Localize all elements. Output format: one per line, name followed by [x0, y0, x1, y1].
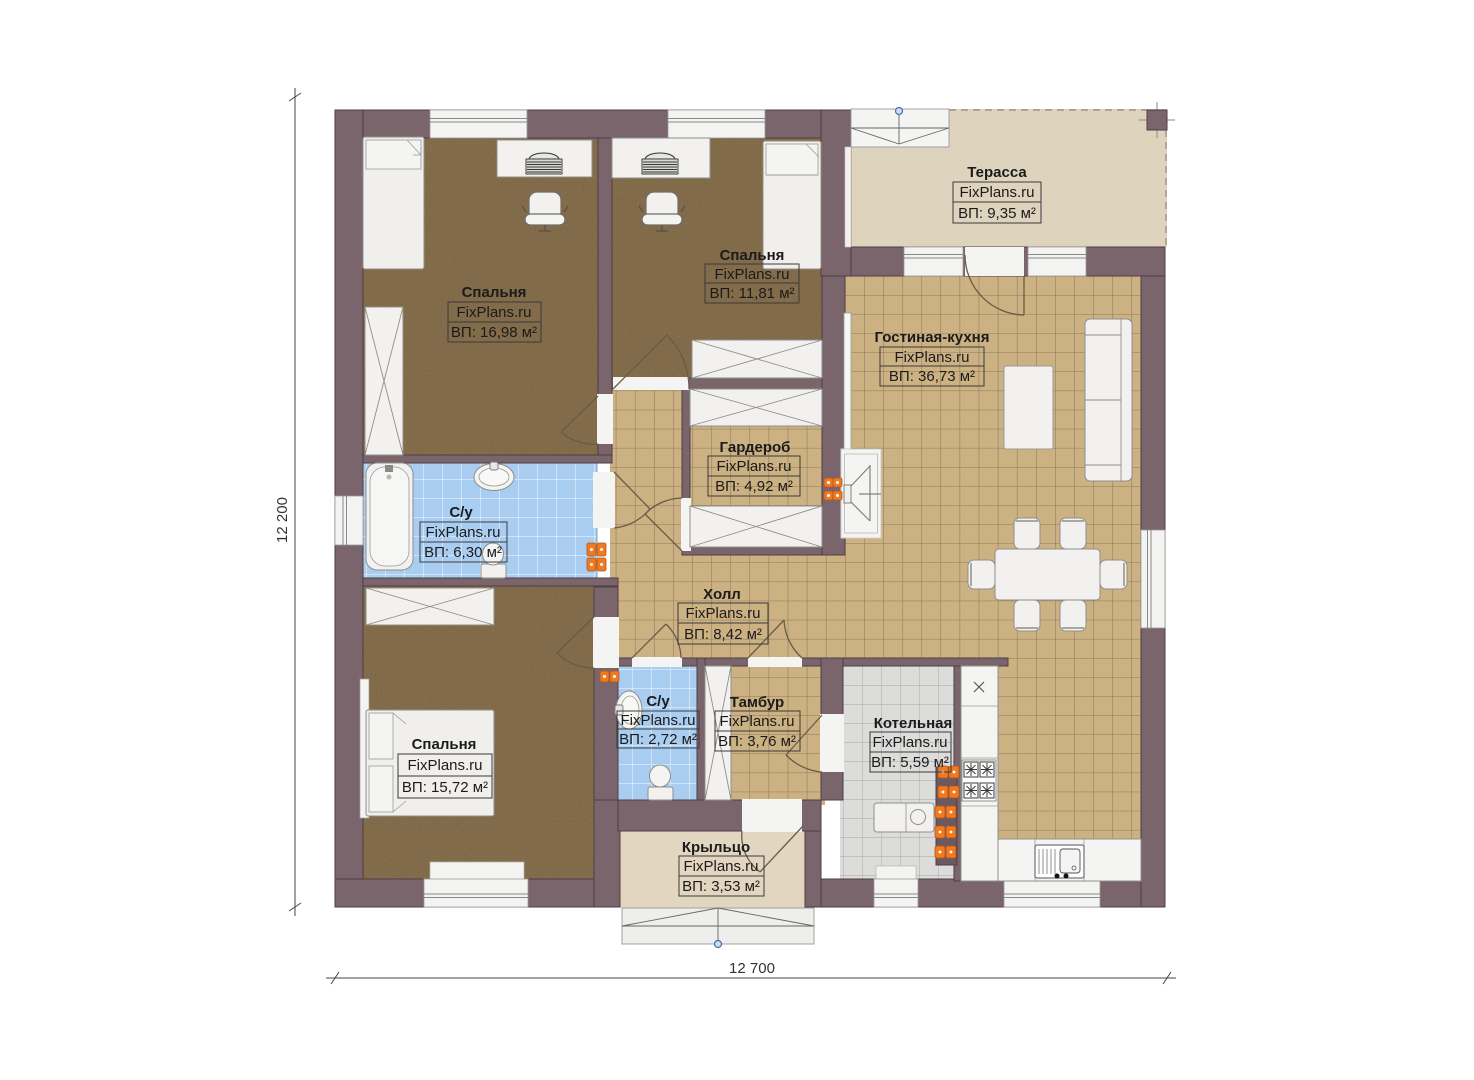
svg-text:12 700: 12 700 — [729, 960, 775, 977]
svg-text:ВП: 6,30 м²: ВП: 6,30 м² — [424, 544, 502, 561]
svg-text:ВП: 2,72 м²: ВП: 2,72 м² — [619, 731, 697, 748]
svg-text:Холл: Холл — [703, 586, 741, 603]
svg-text:FixPlans.ru: FixPlans.ru — [683, 858, 758, 875]
svg-text:ВП: 8,42 м²: ВП: 8,42 м² — [684, 626, 762, 643]
svg-text:Спальня: Спальня — [462, 284, 527, 301]
svg-text:ВП: 15,72 м²: ВП: 15,72 м² — [402, 779, 488, 796]
svg-text:ВП: 11,81 м²: ВП: 11,81 м² — [709, 285, 794, 302]
svg-text:FixPlans.ru: FixPlans.ru — [959, 184, 1034, 201]
svg-text:FixPlans.ru: FixPlans.ru — [620, 712, 695, 729]
svg-text:Гардероб: Гардероб — [720, 439, 791, 456]
svg-text:Спальня: Спальня — [720, 247, 785, 264]
svg-text:ВП: 3,76 м²: ВП: 3,76 м² — [718, 733, 796, 750]
svg-text:Крыльцо: Крыльцо — [682, 839, 750, 856]
svg-text:Котельная: Котельная — [874, 715, 953, 732]
svg-text:ВП: 5,59 м²: ВП: 5,59 м² — [871, 754, 949, 771]
svg-text:Терасса: Терасса — [967, 164, 1027, 181]
svg-text:ВП: 9,35 м²: ВП: 9,35 м² — [958, 205, 1036, 222]
svg-text:С/у: С/у — [449, 504, 473, 521]
svg-text:12 200: 12 200 — [274, 497, 291, 543]
svg-text:ВП: 16,98 м²: ВП: 16,98 м² — [451, 324, 537, 341]
svg-text:С/у: С/у — [646, 693, 670, 710]
svg-text:Тамбур: Тамбур — [730, 694, 784, 711]
svg-text:Гостиная-кухня: Гостиная-кухня — [875, 329, 990, 346]
svg-text:FixPlans.ru: FixPlans.ru — [716, 458, 791, 475]
svg-text:FixPlans.ru: FixPlans.ru — [719, 713, 794, 730]
svg-text:FixPlans.ru: FixPlans.ru — [456, 304, 531, 321]
svg-text:ВП: 3,53 м²: ВП: 3,53 м² — [682, 878, 760, 895]
svg-text:FixPlans.ru: FixPlans.ru — [407, 757, 482, 774]
svg-text:Спальня: Спальня — [412, 736, 477, 753]
svg-text:ВП: 4,92 м²: ВП: 4,92 м² — [715, 478, 793, 495]
svg-text:FixPlans.ru: FixPlans.ru — [425, 524, 500, 541]
svg-text:FixPlans.ru: FixPlans.ru — [872, 734, 947, 751]
svg-text:ВП: 36,73 м²: ВП: 36,73 м² — [889, 368, 975, 385]
svg-text:FixPlans.ru: FixPlans.ru — [714, 266, 789, 283]
svg-text:FixPlans.ru: FixPlans.ru — [894, 349, 969, 366]
svg-text:FixPlans.ru: FixPlans.ru — [685, 605, 760, 622]
